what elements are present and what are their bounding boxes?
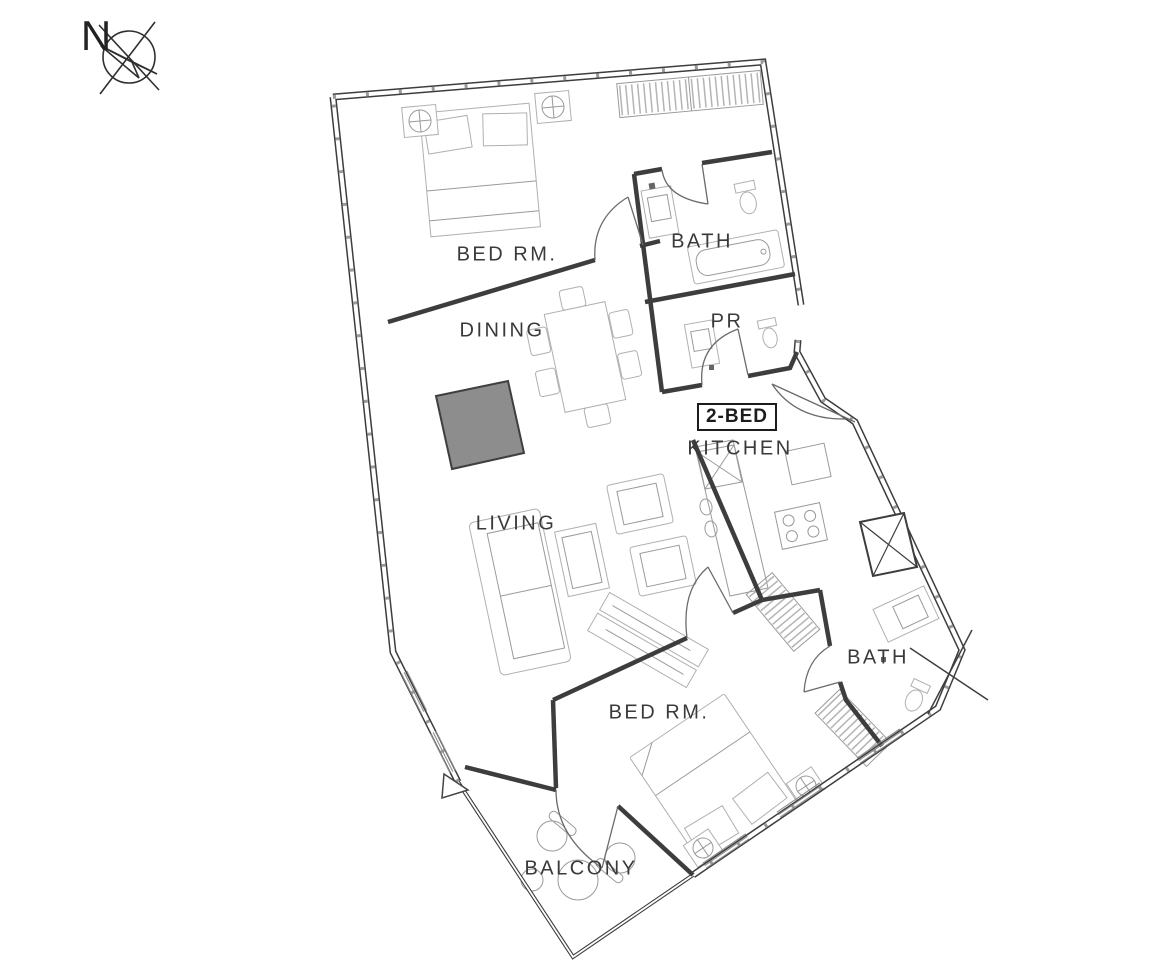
nightstand-top-right <box>535 90 572 123</box>
dining-table <box>520 278 651 437</box>
room-label-kitchen: KITCHEN <box>687 438 792 461</box>
coffee-table <box>555 523 610 596</box>
balcony-chair-1 <box>530 810 578 858</box>
armchair-1 <box>606 474 673 535</box>
unit-type-badge: 2-BED <box>697 403 777 431</box>
toilet-bottom-bath <box>901 679 930 715</box>
shaft-block <box>436 381 524 469</box>
stove <box>775 503 828 550</box>
kitchen-counter <box>695 440 768 596</box>
floor-drain-pr <box>709 365 714 370</box>
floorplan-page: N BED RM. BATH DINING PR 2-BED KITCHEN L… <box>0 0 1158 980</box>
duct-shaft <box>860 513 917 576</box>
floor-drain-top-bath <box>649 183 656 190</box>
room-label-bedroom-top: BED RM. <box>457 244 558 267</box>
room-label-living: LIVING <box>476 513 557 536</box>
toilet-pr <box>757 317 781 349</box>
north-label: N <box>81 12 111 60</box>
closet-bedroom <box>815 690 891 767</box>
room-label-balcony: BALCONY <box>524 858 637 881</box>
nightstand-top-left <box>402 104 439 137</box>
vanity-bottom-bath <box>873 586 939 642</box>
room-label-bath-bottom: BATH <box>847 647 909 670</box>
wardrobe-top <box>617 70 764 117</box>
room-label-bedroom-bottom: BED RM. <box>609 702 710 725</box>
room-label-bath-top: BATH <box>671 231 733 254</box>
armchair-2 <box>629 536 696 597</box>
toilet-top-bath <box>734 180 760 215</box>
room-label-pr: PR <box>711 311 744 334</box>
floorplan-canvas <box>0 0 1158 980</box>
room-label-dining: DINING <box>460 320 545 343</box>
